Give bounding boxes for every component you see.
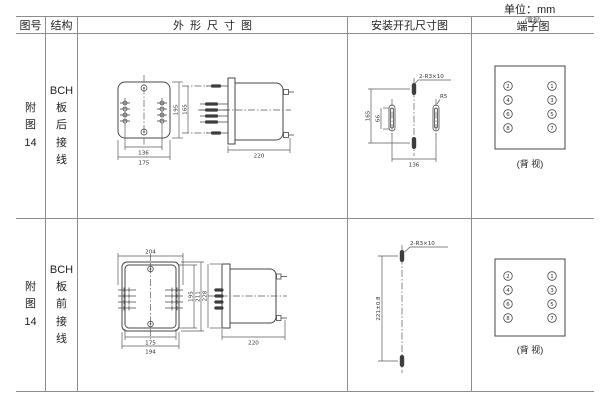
row1-outline-cell: 195 136 175 165 [78, 34, 348, 219]
svg-text:3: 3 [550, 98, 553, 104]
label-slots: 2-R3×10 [419, 74, 444, 80]
unit-label: 单位：mm [504, 1, 555, 17]
mounting-slot-bottom [412, 137, 416, 149]
dim-175: 175 [145, 341, 156, 347]
row2-terminal-cell: 2 4 6 8 1 3 5 7 (背 视) [472, 219, 594, 391]
dim-211: 211 [196, 291, 202, 302]
svg-text:3: 3 [550, 288, 553, 294]
terminal-pins-right [165, 288, 183, 311]
row2-mounting-cell: 2-R3×10 221±0.8 [348, 219, 472, 391]
terminal-slot-left [389, 99, 395, 137]
header-outline-dims: 外形尺寸图 [78, 17, 348, 34]
mounting-slot-top [412, 83, 416, 95]
dim-165: 165 [366, 110, 372, 121]
label-slots: 2-R3×10 [410, 241, 435, 247]
row1-mounting-cell: 2-R3×10 165 66 [348, 34, 472, 219]
row2-figure-no: 附 图 14 [16, 219, 46, 391]
relay-front-side-view: 228 220 [203, 264, 288, 347]
terminal-slot-right [433, 99, 439, 137]
svg-text:6: 6 [506, 302, 510, 308]
spec-table: 图号 结构 外形尺寸图 安装开孔尺寸图 (背视) 端子图 附 图 14 BCH … [16, 16, 594, 392]
dim-136: 136 [409, 163, 420, 169]
row2-mounting-drawing: 2-R3×10 221±0.8 [348, 219, 472, 391]
header-mounting-dims: 安装开孔尺寸图 [348, 17, 472, 34]
svg-text:1: 1 [550, 274, 553, 280]
row2-terminal-diagram: 2 4 6 8 1 3 5 7 (背 视) [472, 219, 594, 391]
row1-structure: BCH 板 后 接 线 [46, 34, 78, 219]
header-figure-no: 图号 [16, 17, 46, 34]
terminal-pins-left [118, 288, 136, 311]
svg-text:1: 1 [550, 84, 553, 90]
terminal-body [495, 66, 565, 149]
row1-terminal-cell: 2 4 6 8 1 3 5 7 (背 视) [472, 34, 594, 219]
dim-204: 204 [145, 250, 156, 256]
terminal-circles: 2 4 6 8 1 3 5 7 [504, 272, 557, 323]
mounting-slot-top [400, 250, 404, 262]
svg-text:5: 5 [550, 302, 553, 308]
svg-text:8: 8 [506, 316, 510, 322]
rear-view-caption: (背 视) [517, 344, 544, 355]
dim-66: 66 [376, 115, 382, 123]
dim-195: 195 [189, 291, 195, 302]
row2-structure: BCH 板 前 接 线 [46, 219, 78, 391]
dim-228: 228 [203, 290, 209, 301]
dim-220: 220 [254, 154, 265, 160]
row1-figure-no: 附 图 14 [16, 34, 46, 219]
dim-194: 194 [145, 350, 156, 356]
dim-175: 175 [139, 161, 150, 167]
svg-text:7: 7 [550, 126, 553, 132]
header-structure: 结构 [46, 17, 78, 34]
relay-front-front-view [118, 254, 183, 339]
svg-text:6: 6 [506, 112, 510, 118]
label-radius: R5 [440, 94, 448, 100]
row2-outline-cell: 204 195 211 175 194 [78, 219, 348, 391]
manual-page: 单位：mm 图号 结构 外形尺寸图 安装开孔尺寸图 (背视) 端子图 附 图 1… [0, 0, 600, 400]
terminal-circles: 2 4 6 8 1 3 5 7 [504, 82, 557, 133]
dim-220: 220 [248, 341, 259, 347]
front-view-dimensions: 195 136 175 [118, 82, 183, 167]
svg-text:2: 2 [506, 274, 509, 280]
relay-rear-side-view: 165 220 [182, 78, 294, 160]
row2-outline-drawing: 204 195 211 175 194 [78, 219, 348, 391]
svg-text:4: 4 [506, 98, 510, 104]
dim-165: 165 [183, 104, 189, 115]
dim-195: 195 [174, 104, 180, 115]
svg-text:4: 4 [506, 288, 510, 294]
svg-text:5: 5 [550, 112, 553, 118]
svg-text:2: 2 [506, 84, 509, 90]
row1-mounting-drawing: 2-R3×10 165 66 [348, 34, 472, 219]
header-terminal-label: 端子图 [517, 22, 550, 33]
svg-text:8: 8 [506, 126, 510, 132]
row1-outline-drawing: 195 136 175 165 [78, 34, 348, 219]
dim-221: 221±0.8 [376, 296, 382, 321]
terminal-body [495, 259, 565, 336]
header-terminal-diagram: (背视) 端子图 [472, 17, 594, 34]
rear-view-caption: (背 视) [517, 158, 544, 169]
dim-136: 136 [138, 151, 149, 157]
mounting-slot-bottom [400, 355, 404, 367]
svg-text:7: 7 [550, 316, 553, 322]
row1-terminal-diagram: 2 4 6 8 1 3 5 7 (背 视) [472, 34, 594, 219]
